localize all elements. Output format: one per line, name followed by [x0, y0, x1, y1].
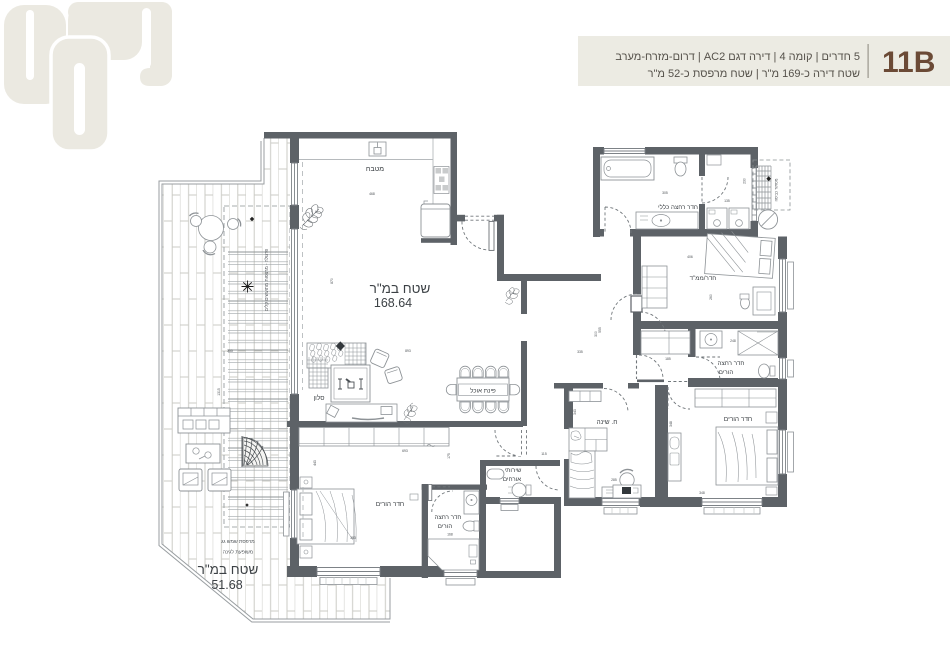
svg-text:מטבח: מטבח — [366, 166, 384, 173]
svg-text:חדר הורים: חדר הורים — [724, 416, 752, 423]
svg-text:חדר/ממ"ד: חדר/ממ"ד — [690, 275, 717, 282]
svg-text:115: 115 — [541, 452, 547, 456]
svg-text:175: 175 — [447, 453, 451, 459]
svg-text:135: 135 — [724, 199, 730, 203]
svg-text:185: 185 — [665, 357, 671, 361]
svg-text:שטח במ"ר: שטח במ"ר — [370, 281, 431, 296]
svg-text:פינת אוכל: פינת אוכל — [470, 387, 496, 395]
svg-text:ח. שינה: ח. שינה — [597, 419, 618, 426]
svg-text:סלון: סלון — [313, 394, 324, 402]
svg-text:שטח דירה כ-169 מ"ר | שטח מרפסת: שטח דירה כ-169 מ"ר | שטח מרפסת כ-52 מ"ר — [648, 68, 860, 80]
svg-text:מרפסת שמש גג: מרפסת שמש גג — [221, 539, 255, 545]
svg-text:406: 406 — [687, 255, 693, 259]
svg-text:שטח במ"ר: שטח במ"ר — [198, 562, 259, 577]
svg-text:משופעת לגינה: משופעת לגינה — [223, 549, 254, 556]
svg-text:5 חדרים | קומה 4 | דירה דגם AC: 5 חדרים | קומה 4 | דירה דגם AC2 | דרום-מ… — [615, 51, 860, 63]
svg-text:הורים: הורים — [719, 369, 734, 376]
svg-text:230: 230 — [743, 178, 747, 184]
svg-text:מסתור כביסה: מסתור כביסה — [774, 178, 779, 201]
svg-text:אורחים: אורחים — [503, 476, 521, 483]
svg-text:305: 305 — [662, 191, 668, 195]
svg-text:חדר רחצה: חדר רחצה — [717, 360, 744, 367]
svg-text:1315: 1315 — [217, 388, 221, 396]
svg-text:355: 355 — [227, 349, 233, 353]
svg-text:870: 870 — [330, 278, 334, 284]
svg-text:חדר רחצה: חדר רחצה — [434, 514, 461, 521]
svg-text:פרגולה - מרצפות מתועשים קלים: פרגולה - מרצפות מתועשים קלים — [264, 249, 269, 312]
svg-text:335: 335 — [577, 350, 583, 354]
svg-text:555: 555 — [598, 327, 602, 333]
svg-text:51.68: 51.68 — [211, 578, 242, 592]
svg-text:11B: 11B — [882, 46, 935, 79]
svg-text:300: 300 — [594, 331, 598, 337]
svg-text:693: 693 — [402, 449, 408, 453]
svg-text:343: 343 — [573, 409, 577, 415]
svg-text:חדר הורים: חדר הורים — [376, 501, 404, 508]
svg-text:285: 285 — [611, 478, 617, 482]
svg-text:468: 468 — [369, 192, 375, 196]
svg-text:348: 348 — [699, 491, 705, 495]
svg-text:168.64: 168.64 — [374, 296, 412, 310]
svg-text:348: 348 — [669, 421, 673, 427]
svg-text:חדר רחצה כללי: חדר רחצה כללי — [658, 203, 698, 211]
svg-text:168: 168 — [447, 533, 453, 537]
svg-text:893: 893 — [405, 349, 411, 353]
svg-text:שירותי: שירותי — [505, 467, 522, 474]
svg-text:248: 248 — [730, 339, 736, 343]
svg-text:443: 443 — [313, 460, 317, 466]
svg-text:260: 260 — [709, 294, 713, 300]
svg-text:הורים: הורים — [438, 523, 453, 530]
svg-text:383: 383 — [350, 536, 356, 540]
